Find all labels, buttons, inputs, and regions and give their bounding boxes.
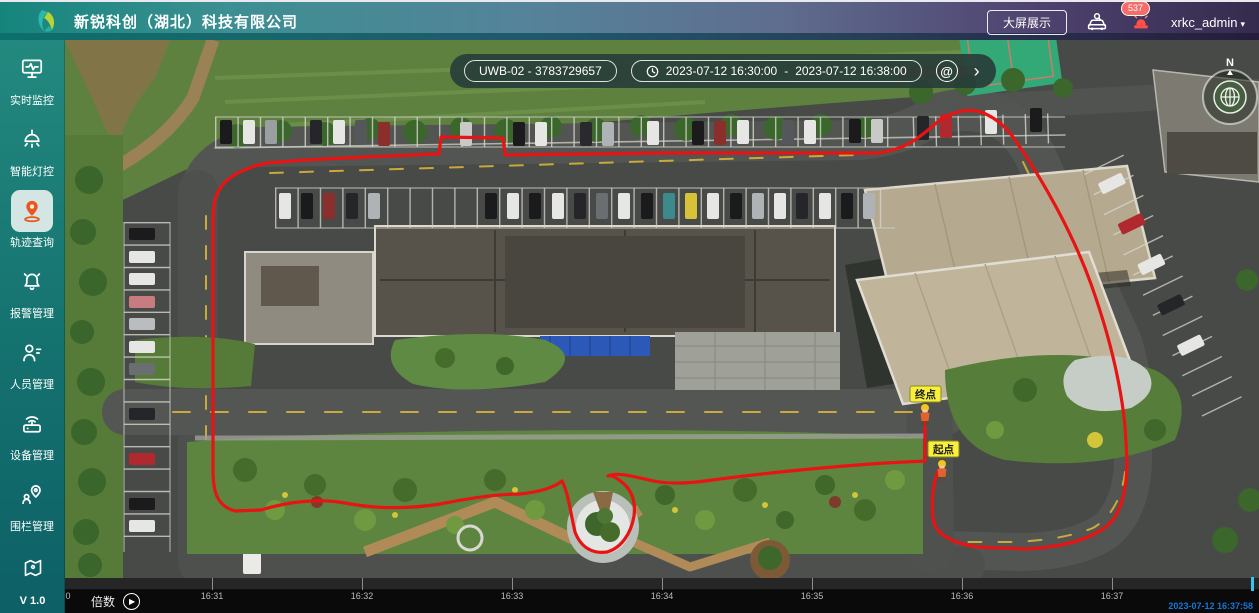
end-marker-label: 终点 (915, 388, 936, 401)
tick-label: 16:34 (651, 591, 674, 601)
time-range-picker[interactable]: 2023-07-12 16:30:00 - 2023-07-12 16:38:0… (631, 60, 922, 82)
sidebar-item-personnel-manage[interactable]: 人员管理 (0, 332, 65, 403)
start-marker-label: 起点 (932, 443, 954, 456)
alarm-bell-icon (19, 269, 45, 295)
tick-mark (962, 578, 963, 590)
alarm-count-badge: 537 (1121, 1, 1150, 16)
user-menu[interactable]: xrkc_admin▾ (1171, 15, 1245, 30)
lamp-icon (19, 127, 45, 153)
caret-down-icon: ▾ (1240, 19, 1245, 29)
play-button[interactable]: ▶ (123, 593, 140, 610)
tick-mark (1112, 578, 1113, 590)
sidebar-item-fence-manage[interactable]: 围栏管理 (0, 474, 65, 545)
tick-mark (362, 578, 363, 590)
sidebar-item-label: 人员管理 (10, 376, 54, 392)
compass-north-label: N (1226, 57, 1234, 69)
search-locate-button[interactable]: @ (936, 60, 958, 82)
tick-mark (812, 578, 813, 590)
sidebar-item-label: 智能灯控 (10, 163, 54, 179)
tick-mark (512, 578, 513, 590)
track-query-toolbar: UWB-02 - 3783729657 2023-07-12 16:30:00 … (450, 54, 996, 88)
person-icon (19, 340, 45, 366)
sidebar-bottom: V 1.0 (0, 547, 65, 607)
clock-icon (646, 65, 659, 78)
track-pin-icon (19, 198, 45, 224)
big-screen-button[interactable]: 大屏展示 (987, 10, 1067, 35)
tick-label: 16:35 (801, 591, 824, 601)
tick-label: 16:32 (351, 591, 374, 601)
sidebar-item-device-manage[interactable]: 设备管理 (0, 403, 65, 474)
map-viewport[interactable]: 终点 起点 (65, 40, 1259, 578)
sidebar-item-realtime-monitor[interactable]: 实时监控 (0, 48, 65, 119)
sidebar-item-alarm-manage[interactable]: 报警管理 (0, 261, 65, 332)
top-header: 新锐科创（湖北）科技有限公司 大屏展示 (0, 0, 1259, 40)
sidebar-nav: 实时监控 智能灯控 轨迹查询 (0, 40, 65, 613)
device-icon (19, 411, 45, 437)
tick-label: 16:31 (201, 591, 224, 601)
time-separator: - (784, 64, 788, 78)
fence-pin-icon (19, 482, 45, 508)
vehicle-search-icon[interactable] (1083, 9, 1111, 35)
tick-label-edge: 0 (65, 591, 70, 601)
sidebar-item-track-query[interactable]: 轨迹查询 (0, 190, 65, 261)
aerial-map-canvas: 终点 起点 (65, 40, 1259, 578)
alarm-siren-icon[interactable]: 537 (1127, 9, 1155, 35)
sidebar-item-label: 轨迹查询 (10, 234, 54, 250)
header-actions: 大屏展示 537 (987, 2, 1245, 42)
map-pin-icon (21, 556, 45, 580)
sidebar-item-map[interactable] (12, 547, 54, 589)
tick-mark (212, 578, 213, 590)
company-logo-icon (34, 7, 62, 35)
app-window: 新锐科创（湖北）科技有限公司 大屏展示 (0, 0, 1259, 613)
sidebar-item-smart-light[interactable]: 智能灯控 (0, 119, 65, 190)
sidebar-item-label: 设备管理 (10, 447, 54, 463)
chevron-right-icon[interactable]: › (972, 62, 982, 80)
time-start-value: 2023-07-12 16:30:00 (666, 64, 777, 78)
sidebar-item-label: 报警管理 (10, 305, 54, 321)
sidebar-item-label: 实时监控 (10, 92, 54, 108)
sidebar-item-label: 围栏管理 (10, 518, 54, 534)
monitor-icon (19, 56, 45, 82)
tick-label: 16:36 (951, 591, 974, 601)
username-label: xrkc_admin (1171, 15, 1237, 30)
tick-label: 16:33 (501, 591, 524, 601)
page-title: 新锐科创（湖北）科技有限公司 (74, 11, 298, 32)
version-label: V 1.0 (20, 595, 46, 607)
speed-label: 倍数 (91, 593, 115, 610)
speed-control: 倍数 ▶ (91, 593, 140, 610)
device-select-value: UWB-02 - 3783729657 (479, 64, 602, 78)
current-time-label: 2023-07-12 16:37:58 (1168, 601, 1253, 611)
tick-label: 16:37 (1101, 591, 1124, 601)
timeline-ruler[interactable] (65, 578, 1259, 590)
device-select[interactable]: UWB-02 - 3783729657 (464, 60, 617, 82)
tick-mark (662, 578, 663, 590)
playhead-cursor[interactable] (1251, 577, 1254, 591)
playback-bar: 0 16:31 16:32 16:33 16:34 16:35 16:36 16… (65, 578, 1259, 613)
time-end-value: 2023-07-12 16:38:00 (795, 64, 906, 78)
